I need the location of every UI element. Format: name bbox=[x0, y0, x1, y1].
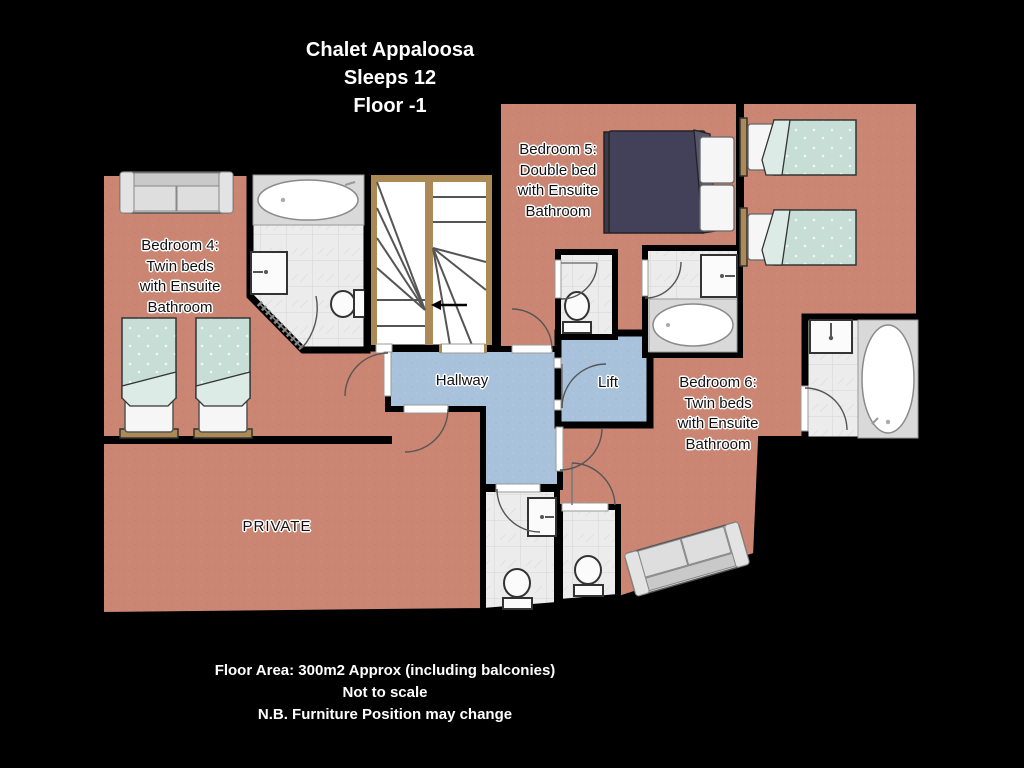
plan-title: Chalet Appaloosa Sleeps 12 Floor -1 bbox=[240, 36, 540, 120]
plan-footer-notes: Floor Area: 300m2 Approx (including balc… bbox=[135, 660, 635, 726]
furniture-note: N.B. Furniture Position may change bbox=[135, 704, 635, 726]
sleeps-count: Sleeps 12 bbox=[240, 64, 540, 92]
wc-bedroom5 bbox=[555, 252, 615, 337]
floor-number: Floor -1 bbox=[240, 92, 540, 120]
bedroom-4-label: Bedroom 4: Twin beds with Ensuite Bathro… bbox=[100, 236, 260, 318]
twin-bed-bedroom4-left bbox=[120, 318, 178, 438]
toilet-icon bbox=[331, 291, 355, 317]
twin-bed-bedroom6-top bbox=[740, 118, 856, 176]
sofa-bedroom4 bbox=[120, 172, 233, 213]
staircase bbox=[368, 172, 495, 348]
wc-left bbox=[483, 484, 557, 611]
lift-label: Lift bbox=[568, 373, 648, 394]
hallway-label: Hallway bbox=[402, 371, 522, 392]
floor-area-note: Floor Area: 300m2 Approx (including balc… bbox=[135, 660, 635, 682]
twin-bed-bedroom4-right bbox=[194, 318, 252, 438]
bathtub-icon bbox=[653, 304, 733, 346]
private-area-label: PRIVATE bbox=[207, 517, 347, 538]
bathtub-icon bbox=[862, 325, 914, 433]
bathtub-icon bbox=[258, 180, 358, 220]
twin-bed-bedroom6-bottom bbox=[740, 208, 856, 266]
bedroom-6-label: Bedroom 6: Twin beds with Ensuite Bathro… bbox=[638, 373, 798, 455]
scale-note: Not to scale bbox=[135, 682, 635, 704]
chalet-name: Chalet Appaloosa bbox=[240, 36, 540, 64]
bathroom-bedroom6 bbox=[801, 317, 920, 440]
bathroom-bedroom5 bbox=[642, 248, 740, 355]
toilet-icon bbox=[565, 292, 589, 320]
toilet-icon bbox=[504, 569, 530, 597]
bedroom-5-label: Bedroom 5: Double bed with Ensuite Bathr… bbox=[478, 140, 638, 222]
toilet-icon bbox=[575, 556, 601, 584]
floorplan-page: Chalet Appaloosa Sleeps 12 Floor -1 Bedr… bbox=[0, 0, 1024, 768]
